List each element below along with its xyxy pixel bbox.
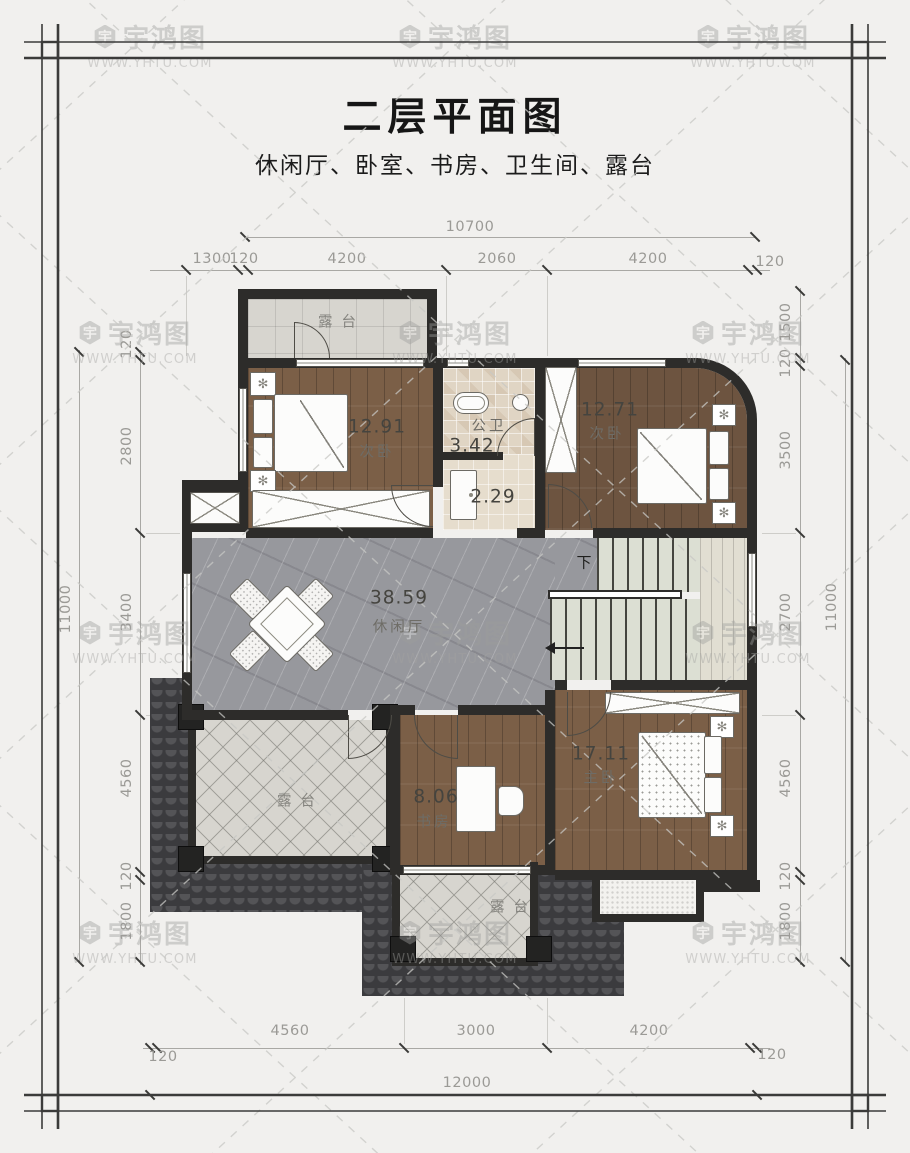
room-area-study: 8.06: [413, 787, 458, 808]
pillow: [253, 399, 273, 434]
wall-segment: [458, 705, 555, 715]
bathtub: [453, 392, 489, 414]
brand-logo-icon: 宇: [398, 25, 422, 49]
room-area-lounge: 38.59: [370, 588, 428, 609]
dim-line: [150, 1095, 757, 1096]
dim-line: [150, 270, 770, 271]
watermark: 宇宇鸿图WWW.YHTU.COM: [370, 18, 540, 71]
dim-extension-line: [762, 533, 796, 534]
nightstand-fan-icon: ✻: [712, 502, 736, 524]
dim-label: 4200: [630, 1023, 669, 1039]
wall-segment: [427, 289, 437, 368]
stair-direction-arrow: [552, 647, 584, 649]
pillow: [709, 431, 729, 465]
wall-segment: [517, 528, 535, 538]
dim-label: 120: [757, 1047, 786, 1063]
wall-segment: [246, 528, 433, 538]
dim-label: 12000: [443, 1075, 492, 1091]
wall-segment: [182, 710, 348, 720]
dim-label: 120: [778, 861, 794, 890]
brand-logo-icon: 宇: [93, 25, 117, 49]
stairs-lower-flight: [550, 599, 700, 680]
terrace-post: [526, 936, 552, 962]
dim-line: [245, 237, 755, 238]
stairs-upper-flight: [597, 538, 700, 592]
wall-segment: [433, 358, 443, 487]
wall-segment: [555, 680, 567, 690]
stair-railing: [548, 590, 682, 599]
watermark-url: WWW.YHTU.COM: [685, 952, 810, 967]
bathtub-basin: [457, 396, 485, 410]
stairs-landing: [700, 538, 747, 680]
room-name-bedroom-ne: 次卧: [590, 423, 625, 444]
dim-extension-line: [547, 276, 548, 356]
window: [239, 388, 247, 472]
brand-logo-icon: 宇: [78, 321, 102, 345]
dim-line: [845, 358, 846, 962]
room-area-bedroom-nw: 12.91: [348, 417, 406, 438]
dim-label: 4560: [271, 1023, 310, 1039]
room-area-bathroom: 3.42: [449, 436, 494, 457]
pillow: [253, 437, 273, 468]
room-label-terrace-west: 露台: [268, 790, 324, 811]
watermark: 宇宇鸿图WWW.YHTU.COM: [668, 18, 838, 71]
dim-extension-line: [762, 715, 796, 716]
wall-segment: [535, 358, 545, 538]
watermark-brand-row: 宇宇鸿图: [696, 18, 810, 55]
nightstand-fan-icon: ✻: [710, 815, 734, 837]
dim-label: 120: [119, 861, 135, 890]
dim-label: 3400: [119, 593, 135, 632]
watermark-brand: 宇鸿图: [123, 18, 207, 55]
nightstand-fan-icon: ✻: [250, 470, 276, 492]
wall-east: [747, 420, 757, 880]
dim-label: 120: [229, 251, 258, 267]
room-area-master: 17.11: [572, 744, 630, 765]
dim-extension-line: [446, 276, 447, 356]
brand-logo-icon: 宇: [78, 621, 102, 645]
dim-label: 3000: [457, 1023, 496, 1039]
dim-label: 11000: [58, 585, 74, 634]
terrace-post: [390, 936, 416, 962]
pillow: [704, 777, 722, 813]
window: [748, 553, 756, 627]
dim-label: 11000: [824, 583, 840, 632]
terrace-sliding-door: [296, 359, 424, 367]
wall-segment: [700, 880, 760, 892]
wall-segment: [611, 680, 755, 690]
dim-label: 1800: [778, 902, 794, 941]
wall-segment: [238, 289, 437, 299]
dim-label: 3500: [778, 431, 794, 470]
dim-extension-line: [547, 998, 548, 1044]
dim-extension-line: [186, 276, 187, 356]
dim-label: 4560: [778, 759, 794, 798]
room-name-study: 书房: [417, 811, 452, 832]
watermark-url: WWW.YHTU.COM: [392, 56, 517, 71]
watermark-url: WWW.YHTU.COM: [690, 56, 815, 71]
desk: [456, 766, 496, 832]
room-label-terrace-south: 露台: [481, 896, 537, 917]
terrace-west-parapet-left: [188, 712, 196, 864]
dim-label: 4200: [328, 251, 367, 267]
floorplan-page: 宇宇鸿图WWW.YHTU.COM 宇宇鸿图WWW.YHTU.COM 宇宇鸿图WW…: [0, 0, 910, 1153]
window: [447, 359, 469, 367]
pillow: [709, 468, 729, 500]
dim-label: 1500: [778, 303, 794, 342]
wall-segment: [593, 528, 755, 538]
watermark: 宇宇鸿图WWW.YHTU.COM: [50, 314, 220, 367]
chair: [498, 786, 524, 816]
stairs-down-label: 下: [576, 552, 591, 573]
dim-label: 120: [778, 348, 794, 377]
nightstand-fan-icon: ✻: [710, 716, 734, 738]
bay-window-sill: [600, 880, 696, 914]
page-title: 二层平面图: [342, 86, 567, 142]
watermark-brand: 宇鸿图: [428, 18, 512, 55]
watermark-url: WWW.YHTU.COM: [87, 56, 212, 71]
brand-logo-icon: 宇: [691, 321, 715, 345]
dim-extension-line: [146, 533, 180, 534]
blanket-fold: [640, 432, 702, 500]
blanket-fold: [300, 400, 344, 468]
wardrobe: [605, 692, 740, 714]
dim-label: 10700: [446, 219, 495, 235]
nightstand-fan-icon: ✻: [250, 372, 276, 396]
watermark: 宇宇鸿图WWW.YHTU.COM: [65, 18, 235, 71]
nightstand-fan-icon: ✻: [712, 404, 736, 426]
dim-label: 120: [148, 1049, 177, 1065]
roof-band-south-bottom: [362, 964, 624, 996]
room-name-bathroom: 公卫: [472, 415, 507, 436]
room-label-terrace-top: 露台: [309, 311, 365, 332]
dim-label: 4560: [119, 759, 135, 798]
dim-label: 120: [755, 254, 784, 270]
wash-basin: [512, 394, 529, 411]
watermark-brand-row: 宇宇鸿图: [93, 18, 207, 55]
flue-vent: [190, 492, 240, 524]
room-area-bedroom-ne: 12.71: [581, 400, 639, 421]
wall-segment: [545, 690, 555, 875]
brand-logo-icon: 宇: [78, 921, 102, 945]
dim-line: [79, 350, 80, 962]
dim-label: 120: [119, 329, 135, 358]
room-area-closet-hall: 2.29: [470, 487, 515, 508]
window: [183, 573, 191, 673]
terrace-post: [178, 846, 204, 872]
watermark-brand: 宇鸿图: [428, 314, 512, 351]
watermark-brand: 宇鸿图: [726, 18, 810, 55]
stair-arrow-head-icon: [545, 642, 555, 654]
dim-label: 2060: [478, 251, 517, 267]
dim-extension-line: [404, 998, 405, 1044]
pillow: [704, 736, 722, 774]
dim-label: 2700: [778, 593, 794, 632]
room-name-bedroom-nw: 次卧: [360, 441, 395, 462]
wall-segment: [390, 705, 415, 715]
wall-segment: [238, 289, 248, 368]
dim-label: 1300: [193, 251, 232, 267]
window: [578, 359, 666, 367]
wardrobe: [545, 367, 577, 473]
brand-logo-icon: 宇: [691, 921, 715, 945]
watermark-url: WWW.YHTU.COM: [72, 652, 197, 667]
watermark-brand-row: 宇宇鸿图: [398, 18, 512, 55]
room-name-master: 主卧: [584, 767, 619, 788]
dim-line: [143, 1048, 770, 1049]
page-subtitle: 休闲厅、卧室、书房、卫生间、露台: [255, 146, 655, 180]
dim-label: 1800: [119, 902, 135, 941]
room-name-lounge: 休闲厅: [373, 616, 426, 637]
terrace-west-parapet-bottom: [188, 856, 394, 864]
wall-segment: [390, 705, 400, 875]
dim-line: [800, 288, 801, 965]
terrace-sliding-door: [403, 866, 531, 874]
dim-label: 4200: [629, 251, 668, 267]
dim-label: 2800: [119, 427, 135, 466]
wall-south-master: [555, 870, 757, 880]
table-inlay: [260, 597, 314, 651]
brand-logo-icon: 宇: [696, 25, 720, 49]
blanket-fold: [642, 736, 702, 814]
